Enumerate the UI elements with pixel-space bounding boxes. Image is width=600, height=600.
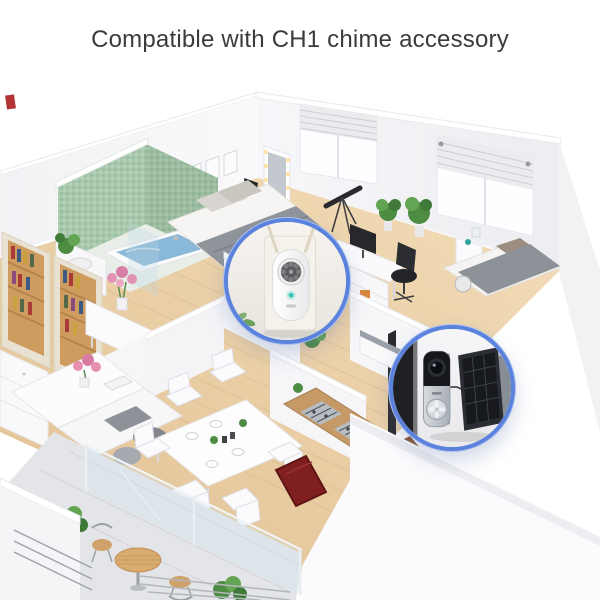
blanket-roll (455, 276, 471, 292)
window-blinds-left (300, 104, 377, 184)
marketing-image: Compatible with CH1 chime accessory (0, 0, 600, 600)
brand-logo (432, 392, 442, 395)
bath-faucet (174, 236, 179, 241)
red-book (5, 94, 16, 109)
cup (465, 239, 471, 245)
doorbell-callout (389, 325, 515, 451)
status-led (289, 293, 294, 298)
brand-logo (286, 304, 296, 307)
video-doorbell (424, 351, 450, 426)
speaker-grille-icon (278, 259, 304, 285)
solar-panel (458, 347, 511, 430)
wall-east-outer (559, 142, 600, 432)
chime-callout (224, 218, 350, 344)
